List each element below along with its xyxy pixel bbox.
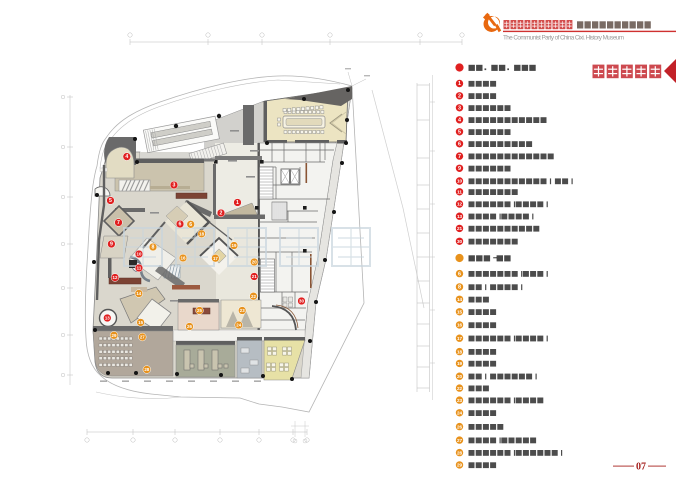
svg-text:22: 22 bbox=[251, 294, 256, 299]
svg-text:14: 14 bbox=[136, 291, 141, 296]
svg-text:5: 5 bbox=[109, 198, 112, 204]
svg-text:22: 22 bbox=[457, 386, 463, 391]
svg-text:27: 27 bbox=[140, 335, 145, 340]
svg-text:9: 9 bbox=[458, 166, 461, 172]
svg-text:18: 18 bbox=[199, 231, 204, 236]
svg-text:17: 17 bbox=[213, 256, 218, 261]
svg-text:24: 24 bbox=[457, 411, 463, 416]
svg-text:3: 3 bbox=[173, 183, 176, 189]
svg-text:20: 20 bbox=[457, 374, 463, 379]
svg-text:5: 5 bbox=[458, 130, 461, 136]
svg-text:2: 2 bbox=[220, 211, 223, 217]
svg-text:19: 19 bbox=[232, 243, 237, 248]
svg-text:23: 23 bbox=[240, 308, 245, 313]
svg-text:3: 3 bbox=[458, 106, 461, 112]
svg-text:24: 24 bbox=[236, 323, 241, 328]
svg-text:11: 11 bbox=[457, 190, 462, 195]
svg-text:29: 29 bbox=[457, 463, 463, 468]
svg-text:28: 28 bbox=[457, 450, 463, 455]
svg-text:13: 13 bbox=[457, 214, 463, 219]
svg-text:9: 9 bbox=[110, 242, 113, 248]
svg-text:4: 4 bbox=[125, 154, 128, 160]
svg-text:10: 10 bbox=[137, 252, 142, 257]
svg-text:4: 4 bbox=[458, 118, 461, 124]
svg-text:21: 21 bbox=[457, 226, 463, 231]
svg-text:23: 23 bbox=[457, 398, 463, 403]
svg-text:1: 1 bbox=[236, 200, 239, 206]
svg-text:14: 14 bbox=[457, 297, 463, 302]
svg-text:6: 6 bbox=[458, 271, 461, 277]
svg-text:7: 7 bbox=[117, 220, 120, 226]
svg-text:8: 8 bbox=[152, 245, 155, 251]
svg-text:13: 13 bbox=[105, 316, 110, 321]
svg-text:1: 1 bbox=[458, 81, 461, 87]
svg-text:07: 07 bbox=[636, 462, 646, 473]
svg-text:28: 28 bbox=[144, 367, 149, 372]
svg-text:26: 26 bbox=[187, 324, 192, 329]
svg-text:26: 26 bbox=[457, 424, 463, 429]
svg-text:20: 20 bbox=[252, 260, 257, 265]
svg-text:2: 2 bbox=[458, 94, 461, 100]
svg-text:6: 6 bbox=[458, 142, 461, 148]
svg-text:21: 21 bbox=[252, 274, 257, 279]
svg-text:18: 18 bbox=[457, 349, 463, 354]
svg-text:12: 12 bbox=[457, 202, 463, 207]
svg-text:29: 29 bbox=[112, 333, 117, 338]
svg-text:15: 15 bbox=[457, 310, 463, 315]
svg-text:25: 25 bbox=[197, 308, 202, 313]
svg-text:11: 11 bbox=[137, 266, 142, 271]
svg-text:19: 19 bbox=[457, 361, 463, 366]
svg-text:6: 6 bbox=[189, 222, 192, 228]
svg-text:8: 8 bbox=[458, 285, 461, 291]
svg-text:15: 15 bbox=[138, 320, 143, 325]
svg-text:6: 6 bbox=[179, 222, 182, 228]
svg-text:16: 16 bbox=[457, 323, 463, 328]
svg-text:30: 30 bbox=[457, 239, 463, 244]
svg-text:27: 27 bbox=[457, 438, 463, 443]
svg-text:30: 30 bbox=[299, 299, 304, 304]
svg-text:10: 10 bbox=[457, 179, 463, 184]
svg-text:7: 7 bbox=[458, 154, 461, 160]
svg-text:12: 12 bbox=[113, 275, 118, 280]
svg-text:16: 16 bbox=[181, 256, 186, 261]
svg-text:17: 17 bbox=[457, 336, 463, 341]
svg-text:The Communist Party of China C: The Communist Party of China Cixi. Histo… bbox=[503, 35, 624, 42]
